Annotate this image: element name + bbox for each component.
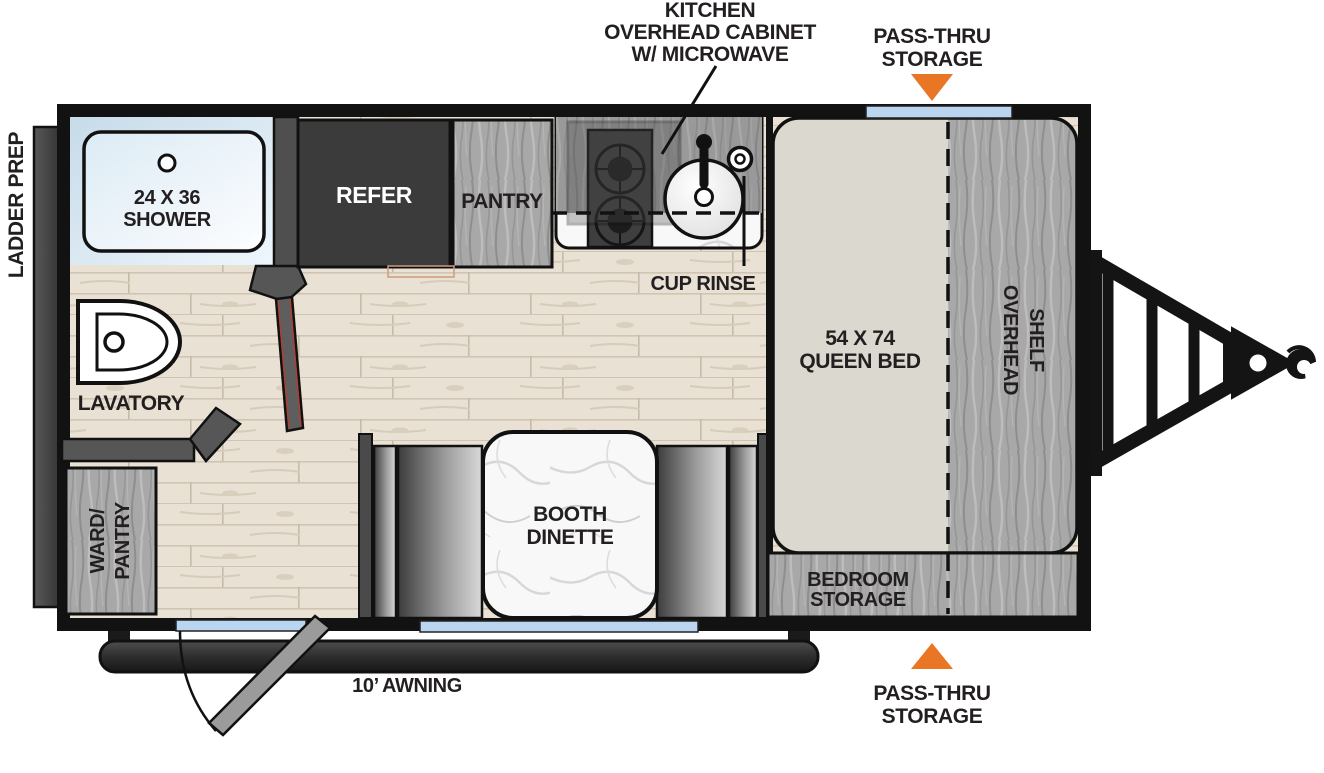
kitchen-cabinet-label-1: KITCHEN bbox=[665, 0, 756, 22]
ladder-prep-bar bbox=[34, 127, 59, 607]
entry-door bbox=[180, 616, 330, 735]
booth-dinette-label-1: BOOTH bbox=[533, 503, 607, 526]
dinette-bench-back-left bbox=[374, 446, 396, 618]
entry-door-opening bbox=[176, 620, 306, 631]
overhead-shelf-label-2: SHELF bbox=[1025, 308, 1047, 372]
kitchen-cabinet-label-2: OVERHEAD CABINET bbox=[604, 21, 816, 44]
entry-door-panel bbox=[209, 616, 330, 735]
awning-label: 10’ AWNING bbox=[352, 675, 462, 697]
bedroom-storage-label-1: BEDROOM bbox=[807, 569, 909, 591]
ward-pantry-cabinet bbox=[66, 468, 156, 614]
shower-drain-icon bbox=[159, 155, 175, 171]
shower-label-2: SHOWER bbox=[123, 209, 212, 231]
pass-thru-top-label-1: PASS-THRU bbox=[873, 25, 990, 48]
hitch-coupler bbox=[1286, 347, 1322, 381]
ward-pantry-label-2: PANTRY bbox=[112, 501, 134, 580]
main-window bbox=[420, 621, 698, 632]
bath-partition-wall bbox=[62, 439, 194, 461]
shower-refer-divider bbox=[274, 117, 298, 267]
dinette-wall-stub-left bbox=[359, 434, 372, 618]
shower-label-1: 24 X 36 bbox=[134, 187, 200, 209]
pass-thru-arrow-bottom-icon bbox=[911, 643, 953, 669]
pass-thru-bottom-label-1: PASS-THRU bbox=[873, 682, 990, 705]
kitchen-cabinet-label-3: W/ MICROWAVE bbox=[632, 43, 789, 66]
floorplan-stage: KITCHEN OVERHEAD CABINET W/ MICROWAVE PA… bbox=[0, 0, 1324, 773]
bedroom-storage-label-2: STORAGE bbox=[810, 589, 906, 611]
pass-thru-arrow-top-icon bbox=[911, 74, 953, 101]
floorplan-svg: KITCHEN OVERHEAD CABINET W/ MICROWAVE PA… bbox=[0, 0, 1324, 773]
ward-pantry-label-1: WARD/ bbox=[87, 508, 109, 574]
toilet bbox=[78, 301, 180, 383]
pass-thru-hatch-top bbox=[866, 106, 1012, 118]
overhead-shelf-label-1: OVERHEAD bbox=[999, 285, 1021, 395]
pass-thru-top-label-2: STORAGE bbox=[882, 48, 983, 71]
cup-rinse-label: CUP RINSE bbox=[651, 273, 756, 295]
refer-label: REFER bbox=[336, 182, 413, 208]
cup-rinse-fixture bbox=[729, 148, 752, 171]
queen-bed-label-1: 54 X 74 bbox=[825, 327, 895, 350]
overhead-cabinet-microwave bbox=[568, 122, 680, 224]
awning-bar bbox=[100, 641, 818, 672]
hitch-jack-circle bbox=[1247, 352, 1269, 374]
dinette-bench-right bbox=[657, 446, 727, 618]
booth-dinette-label-2: DINETTE bbox=[526, 526, 613, 549]
queen-bed-label-2: QUEEN BED bbox=[799, 350, 920, 373]
pass-thru-bottom-label-2: STORAGE bbox=[882, 705, 983, 728]
dinette-bench-back-right bbox=[729, 446, 757, 618]
ladder-prep-label: LADDER PREP bbox=[5, 132, 28, 279]
lavatory-label: LAVATORY bbox=[78, 392, 185, 415]
pantry-label: PANTRY bbox=[461, 190, 543, 213]
dinette-bench-left bbox=[398, 446, 482, 618]
